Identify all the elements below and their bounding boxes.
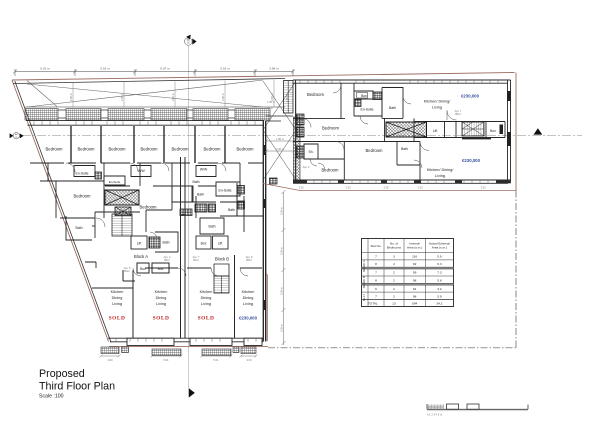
svg-text:Living: Living — [435, 174, 445, 178]
svg-text:Proposed: Proposed — [39, 368, 85, 380]
svg-text:34.2: 34.2 — [436, 302, 442, 306]
svg-text:Kitchen: Kitchen — [242, 290, 255, 294]
svg-text:3.35: 3.35 — [480, 186, 486, 190]
svg-text:Flat No.: Flat No. — [371, 244, 382, 248]
svg-text:5.01 m: 5.01 m — [220, 67, 230, 71]
svg-text:Bath: Bath — [209, 225, 216, 229]
svg-text:96m²: 96m² — [124, 269, 130, 273]
svg-text:7: 7 — [375, 294, 377, 298]
svg-text:Kitchen/ Dining/: Kitchen/ Dining/ — [427, 168, 455, 172]
svg-text:Box: Box — [201, 242, 207, 246]
svg-text:6: 6 — [375, 287, 377, 291]
svg-text:Bedroom: Bedroom — [74, 194, 92, 199]
svg-text:Bedroom: Bedroom — [366, 148, 384, 153]
svg-text:Lift: Lift — [218, 242, 223, 246]
svg-text:5.9: 5.9 — [437, 294, 442, 298]
svg-text:Bedroom: Bedroom — [322, 126, 340, 131]
svg-text:Area (s.m.): Area (s.m.) — [432, 246, 447, 250]
svg-text:13: 13 — [392, 302, 396, 306]
svg-text:3: 3 — [393, 255, 395, 259]
svg-text:3.35: 3.35 — [383, 186, 389, 190]
svg-text:Kitchen/ Dining/: Kitchen/ Dining/ — [424, 100, 452, 104]
svg-text:€230,000: €230,000 — [239, 316, 258, 321]
svg-text:594: 594 — [412, 302, 417, 306]
svg-text:1.80 m: 1.80 m — [276, 137, 284, 141]
svg-text:Bedroom: Bedroom — [204, 147, 222, 152]
svg-text:3.60: 3.60 — [246, 358, 252, 362]
svg-text:3.35: 3.35 — [298, 186, 304, 190]
svg-text:8: 8 — [375, 278, 377, 282]
svg-text:En-Suite: En-Suite — [218, 189, 231, 193]
svg-text:7.3: 7.3 — [437, 271, 442, 275]
svg-text:Block B: Block B — [215, 256, 229, 261]
svg-text:0 1 2 3 4 5 m: 0 1 2 3 4 5 m — [427, 413, 442, 417]
svg-text:BLOCK B: BLOCK B — [362, 276, 366, 288]
svg-text:Kitchen: Kitchen — [155, 290, 168, 294]
svg-text:Block A: Block A — [134, 254, 148, 259]
svg-text:En-Suite: En-Suite — [109, 180, 121, 184]
svg-text:Lift: Lift — [137, 242, 142, 246]
svg-text:2: 2 — [393, 262, 395, 266]
svg-text:Bath: Bath — [197, 193, 204, 197]
svg-text:Bedroom: Bedroom — [237, 147, 255, 152]
svg-text:En-Suite: En-Suite — [360, 108, 373, 112]
svg-text:Box: Box — [140, 267, 146, 271]
svg-text:Bath: Bath — [401, 147, 408, 151]
svg-text:Third Floor Plan: Third Floor Plan — [39, 380, 115, 392]
svg-text:2: 2 — [393, 278, 395, 282]
svg-text:2.80 m: 2.80 m — [171, 93, 175, 101]
svg-text:Bedrooms: Bedrooms — [387, 246, 402, 250]
svg-text:Bedroom: Bedroom — [109, 147, 127, 152]
svg-text:Kitchen: Kitchen — [111, 290, 124, 294]
svg-text:Bath: Bath — [193, 180, 200, 184]
svg-text:2: 2 — [393, 271, 395, 275]
svg-text:98m²: 98m² — [246, 258, 252, 262]
svg-text:Living: Living — [432, 106, 442, 110]
svg-text:2.80 m: 2.80 m — [120, 93, 124, 101]
svg-text:Dining: Dining — [112, 296, 123, 300]
svg-text:98m²: 98m² — [164, 258, 170, 262]
svg-text:2.80 m: 2.80 m — [221, 93, 225, 101]
svg-text:Living: Living — [201, 302, 211, 306]
svg-text:92: 92 — [413, 262, 417, 266]
svg-text:6.3: 6.3 — [437, 262, 442, 266]
svg-text:Bedroom: Bedroom — [307, 92, 325, 97]
svg-text:98m²: 98m² — [455, 112, 461, 116]
svg-text:Bedroom: Bedroom — [172, 147, 190, 152]
svg-text:Dining: Dining — [201, 296, 212, 300]
svg-text:SOLD: SOLD — [153, 316, 170, 322]
svg-text:5.01 m: 5.01 m — [100, 67, 110, 71]
svg-text:5.6: 5.6 — [437, 278, 442, 282]
svg-text:W/W: W/W — [137, 169, 145, 173]
svg-text:3.2: 3.2 — [437, 287, 442, 291]
svg-text:Bath: Bath — [163, 241, 170, 245]
svg-text:En-Suite: En-Suite — [75, 172, 88, 176]
svg-text:1.80 m: 1.80 m — [265, 106, 273, 110]
svg-text:2.40 m: 2.40 m — [276, 147, 284, 151]
svg-text:Sh.: Sh. — [308, 150, 313, 154]
svg-text:5.9: 5.9 — [437, 255, 442, 259]
svg-text:Bedroom: Bedroom — [322, 168, 340, 173]
svg-text:3.35: 3.35 — [417, 186, 423, 190]
svg-text:3.94 m: 3.94 m — [269, 67, 279, 71]
svg-text:98: 98 — [413, 278, 417, 282]
svg-text:BLOCK A: BLOCK A — [362, 260, 366, 272]
svg-text:Box: Box — [158, 267, 164, 271]
svg-text:7: 7 — [375, 271, 377, 275]
svg-text:2: 2 — [393, 294, 395, 298]
svg-text:TOTAL: TOTAL — [368, 302, 378, 306]
svg-text:1.80 m: 1.80 m — [267, 100, 275, 104]
svg-text:Kitchen: Kitchen — [200, 290, 213, 294]
svg-text:Living: Living — [243, 302, 253, 306]
svg-text:Bedroom: Bedroom — [140, 205, 158, 210]
svg-text:Bedroom: Bedroom — [141, 147, 159, 152]
svg-text:5.07 m: 5.07 m — [160, 67, 170, 71]
svg-text:Box: Box — [490, 129, 496, 133]
svg-text:7: 7 — [375, 255, 377, 259]
svg-text:3.35 m: 3.35 m — [280, 287, 284, 295]
svg-text:Scale :100: Scale :100 — [39, 394, 64, 400]
svg-text:Living: Living — [156, 302, 166, 306]
svg-text:99: 99 — [413, 271, 417, 275]
svg-text:5.01 m: 5.01 m — [40, 67, 50, 71]
svg-text:€230,000: €230,000 — [462, 158, 481, 163]
svg-text:Living: Living — [112, 302, 122, 306]
svg-text:Box: Box — [361, 94, 367, 98]
svg-text:2.80 m: 2.80 m — [69, 93, 73, 101]
svg-text:Bath: Bath — [76, 226, 83, 230]
svg-text:3.35 m: 3.35 m — [280, 207, 284, 215]
svg-text:5.01: 5.01 — [163, 358, 169, 362]
svg-text:No 17: No 17 — [362, 293, 366, 301]
svg-text:116: 116 — [412, 255, 417, 259]
svg-text:Area (s.m.): Area (s.m.) — [407, 246, 422, 250]
svg-text:Bedroom: Bedroom — [46, 147, 64, 152]
svg-text:2.80 m: 2.80 m — [270, 93, 274, 101]
svg-text:3.35 m: 3.35 m — [280, 247, 284, 255]
svg-text:2: 2 — [393, 287, 395, 291]
svg-text:Dining: Dining — [243, 296, 254, 300]
svg-text:Bath: Bath — [389, 106, 396, 110]
svg-text:Lift: Lift — [433, 129, 438, 133]
svg-text:96m²: 96m² — [193, 258, 199, 262]
svg-text:Apt. 2: Apt. 2 — [303, 165, 310, 169]
svg-text:2.95 m: 2.95 m — [280, 324, 284, 332]
svg-text:91: 91 — [413, 287, 417, 291]
svg-text:SOLD: SOLD — [198, 316, 215, 322]
svg-text:SOLD: SOLD — [109, 316, 126, 322]
svg-text:3.35: 3.35 — [345, 186, 351, 190]
svg-text:Dining: Dining — [156, 296, 167, 300]
svg-text:3.60: 3.60 — [107, 358, 113, 362]
svg-text:Bedroom: Bedroom — [78, 147, 96, 152]
svg-text:98: 98 — [413, 294, 417, 298]
svg-text:W/W: W/W — [200, 168, 208, 172]
svg-text:€230,000: €230,000 — [461, 94, 480, 99]
svg-text:5.01: 5.01 — [213, 358, 219, 362]
svg-text:8: 8 — [375, 262, 377, 266]
svg-text:Bath: Bath — [228, 208, 235, 212]
